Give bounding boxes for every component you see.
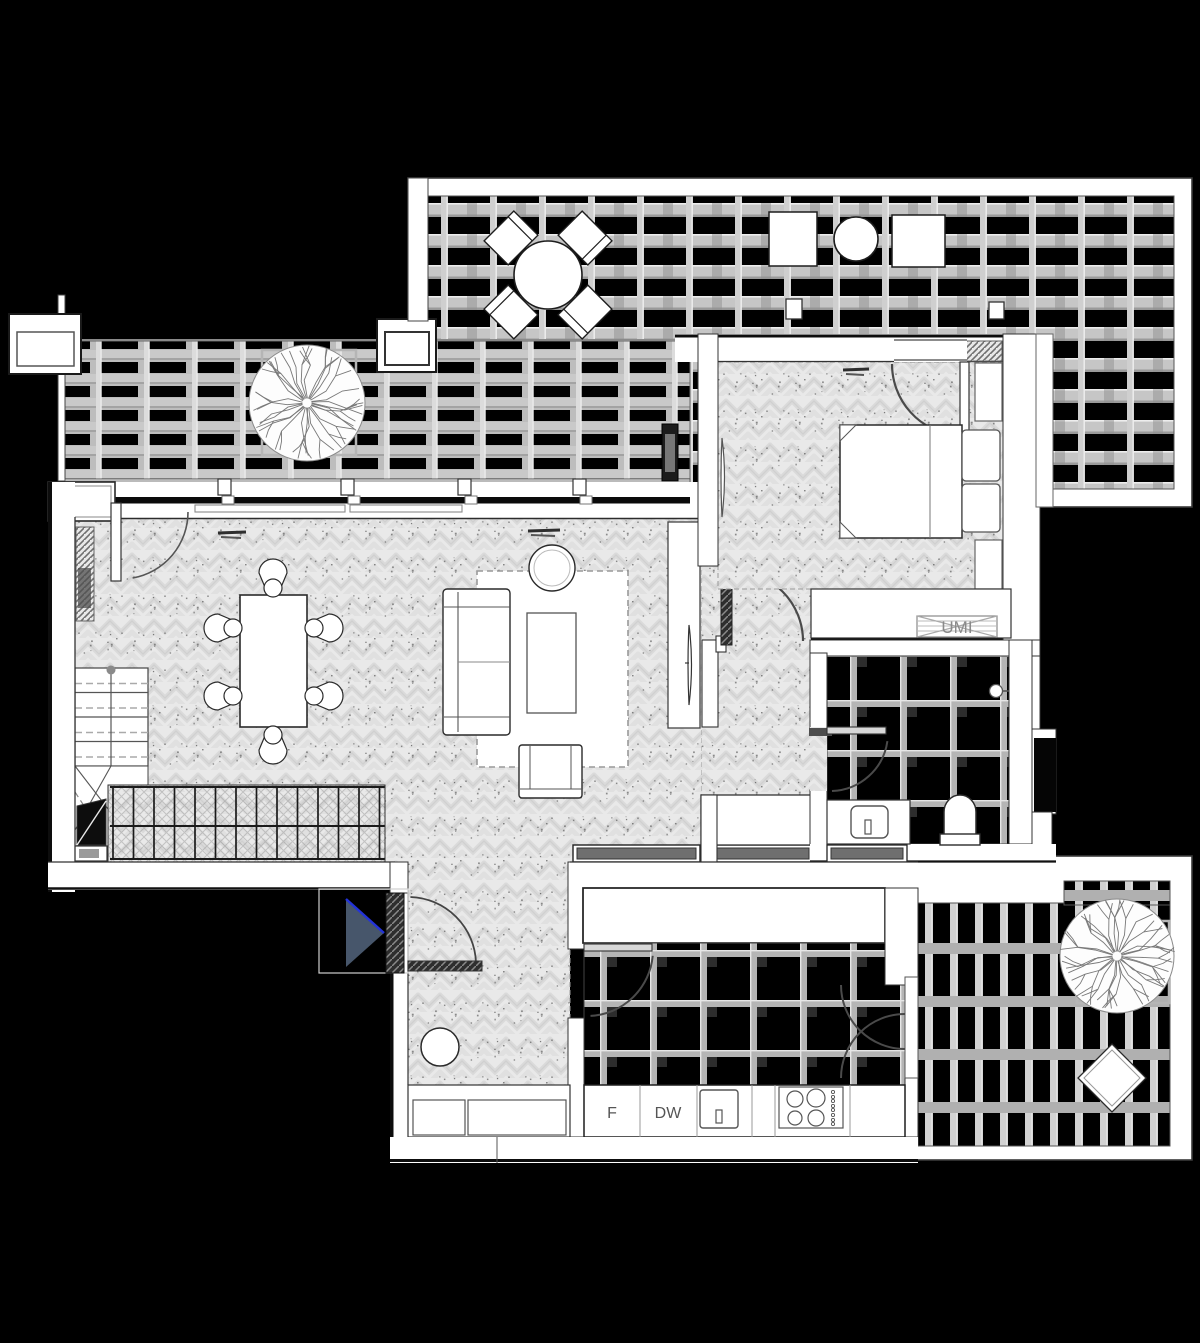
svg-text:F: F bbox=[607, 1105, 617, 1122]
svg-text:UMI: UMI bbox=[941, 618, 972, 637]
svg-text:DW: DW bbox=[655, 1105, 683, 1122]
